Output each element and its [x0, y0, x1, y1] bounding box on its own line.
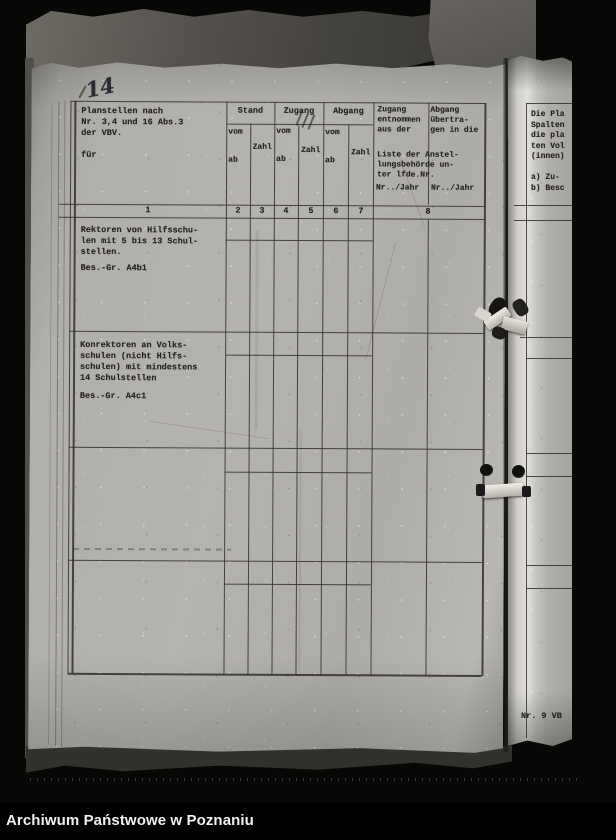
adjacent-page-footer: Nr. 9 VB: [521, 711, 562, 722]
grid-line-h: [526, 588, 572, 589]
archive-caption-text: Archiwum Państwowe w Poznaniu: [6, 812, 254, 829]
grid-line-h: [526, 358, 572, 359]
grid-line-h: [514, 220, 572, 221]
grid-line-h: [526, 103, 572, 104]
fastener-shadow: [510, 297, 530, 318]
punch-hole: [512, 465, 525, 478]
fastener-metal: [482, 483, 525, 499]
adjacent-page: Die Pla Spalten die pla ten Vol (innen) …: [0, 0, 616, 840]
archive-photo: 14 Planstellen nach Nr. 3,4 und 16 Abs.3…: [0, 0, 616, 840]
binding-fastener: [478, 293, 542, 353]
grid-line-v: [526, 103, 527, 738]
binding-fastener: [470, 456, 540, 508]
grid-line-h: [514, 205, 572, 206]
fastener-shadow: [522, 486, 531, 497]
fastener-shadow: [476, 484, 485, 496]
grid-line-h: [526, 565, 572, 566]
adjacent-page-text: Die Pla Spalten die pla ten Vol (innen) …: [531, 110, 573, 194]
punch-hole: [480, 464, 493, 476]
grid-line-h: [526, 453, 572, 454]
archive-caption-bar: Archiwum Państwowe w Poznaniu: [0, 802, 616, 840]
